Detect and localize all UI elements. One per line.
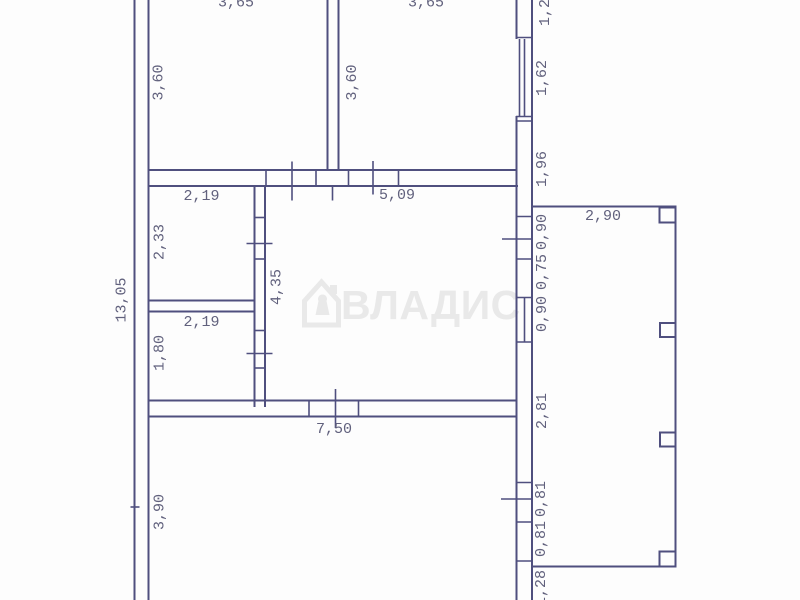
svg-text:5,09: 5,09 xyxy=(379,187,415,204)
svg-text:4,35: 4,35 xyxy=(269,269,286,305)
svg-text:13,05: 13,05 xyxy=(114,277,131,322)
svg-text:0,81: 0,81 xyxy=(533,521,550,557)
svg-text:3,90: 3,90 xyxy=(152,494,169,530)
svg-text:3,60: 3,60 xyxy=(151,64,168,100)
svg-text:0,90: 0,90 xyxy=(534,296,551,332)
svg-text:1,28: 1,28 xyxy=(533,570,550,600)
svg-text:0,75: 0,75 xyxy=(534,254,551,290)
svg-text:3,65: 3,65 xyxy=(408,0,444,12)
svg-text:2,90: 2,90 xyxy=(585,208,621,225)
svg-text:1,80: 1,80 xyxy=(152,335,169,371)
svg-text:2,33: 2,33 xyxy=(152,224,169,260)
svg-text:0,81: 0,81 xyxy=(533,481,550,517)
svg-text:1,24: 1,24 xyxy=(537,0,554,26)
svg-text:2,19: 2,19 xyxy=(183,188,219,205)
svg-text:7,50: 7,50 xyxy=(316,421,352,438)
svg-text:3,60: 3,60 xyxy=(344,64,361,100)
svg-text:2,81: 2,81 xyxy=(534,393,551,429)
svg-text:2,19: 2,19 xyxy=(183,314,219,331)
svg-text:1,96: 1,96 xyxy=(534,151,551,187)
svg-text:1,62: 1,62 xyxy=(534,60,551,96)
svg-text:ВЛАДИС: ВЛАДИС xyxy=(341,282,521,328)
svg-text:3,65: 3,65 xyxy=(218,0,254,12)
svg-text:0,90: 0,90 xyxy=(534,214,551,250)
